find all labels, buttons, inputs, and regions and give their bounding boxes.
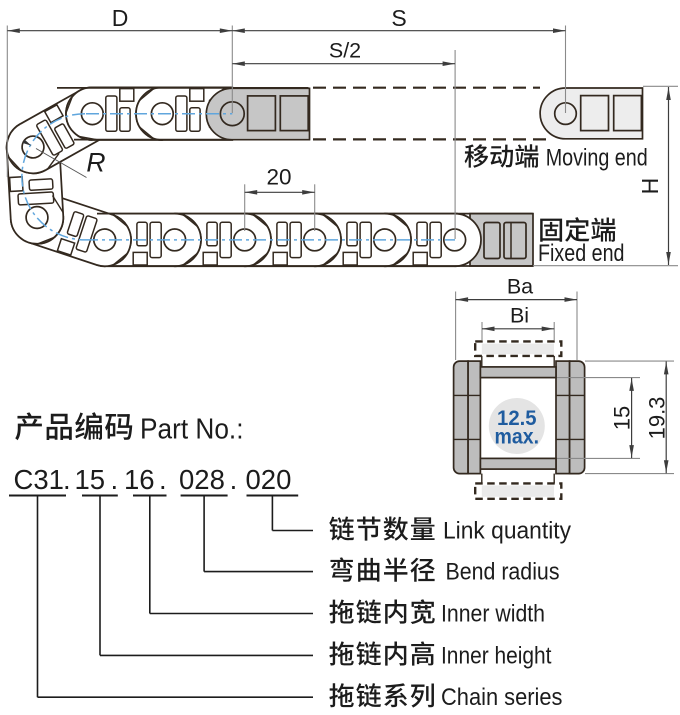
svg-text:Ba: Ba [507,275,533,299]
svg-text:.: . [230,464,238,495]
svg-text:15: 15 [610,406,635,430]
svg-text:H: H [637,178,663,195]
svg-text:020: 020 [246,464,292,495]
svg-text:C31: C31 [14,464,64,495]
svg-text:D: D [112,5,129,31]
svg-text:Part No.:: Part No.: [140,414,244,446]
svg-text:19.3: 19.3 [645,397,670,440]
svg-text:Chain series: Chain series [441,684,563,711]
svg-text:.: . [63,464,71,495]
svg-text:Inner width: Inner width [441,601,545,628]
svg-text:.: . [159,464,167,495]
svg-text:16: 16 [124,464,155,495]
svg-text:Moving end: Moving end [546,145,648,172]
svg-text:R: R [86,148,105,178]
svg-text:max.: max. [495,425,540,449]
svg-text:S/2: S/2 [329,39,361,63]
svg-text:20: 20 [266,165,291,190]
svg-text:Fixed end: Fixed end [538,240,625,267]
svg-text:Inner height: Inner height [441,642,552,669]
svg-text:15: 15 [75,464,106,495]
svg-text:S: S [391,5,406,31]
svg-text:028: 028 [179,464,225,495]
svg-text:.: . [111,464,119,495]
svg-text:Bend radius: Bend radius [446,559,560,586]
svg-text:Link quantity: Link quantity [443,518,571,545]
svg-text:Bi: Bi [510,304,529,328]
